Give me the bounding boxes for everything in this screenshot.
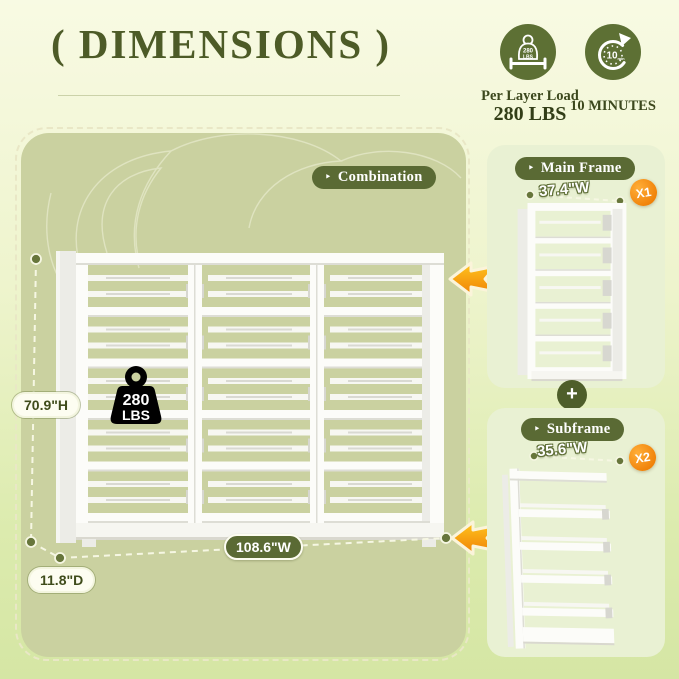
subframe-illustration	[501, 462, 621, 654]
tag-arrow-icon: ‣	[325, 173, 331, 183]
subframe-panel: ‣ Subframe 35.6"W X2	[487, 408, 665, 657]
combination-tag-label: Combination	[338, 169, 423, 186]
timer-icon-text: 10	[606, 51, 618, 62]
main-frame-title: Main Frame	[541, 160, 622, 177]
title-underline	[58, 95, 400, 96]
page-title: ( DIMENSIONS )	[20, 20, 422, 68]
dimensions-infographic: ( DIMENSIONS ) 280 LBS Per Layer Load 28…	[0, 0, 679, 679]
assembly-caption: 10 MINUTES	[548, 98, 678, 114]
combination-shelf-illustration: 280 LBS	[50, 249, 452, 551]
weight-badge-line2: LBS	[122, 407, 150, 423]
height-dimension-label: 70.9"H	[12, 392, 80, 418]
depth-dimension-label: 11.8"D	[28, 567, 95, 593]
assembly-caption-line: 10 MINUTES	[548, 98, 678, 114]
timer-icon-subtext: min	[617, 56, 625, 61]
plus-badge: +	[557, 380, 587, 410]
weight-icon: 280 LBS	[500, 24, 556, 80]
tag-arrow-icon: ‣	[528, 164, 534, 174]
combination-tag: ‣ Combination	[312, 166, 436, 189]
main-frame-illustration	[517, 201, 629, 383]
width-dimension-label: 108.6"W	[224, 534, 303, 560]
subframe-title: Subframe	[547, 421, 611, 438]
tag-arrow-icon: ‣	[534, 425, 540, 435]
main-frame-tag: ‣ Main Frame	[515, 157, 635, 180]
subframe-tag: ‣ Subframe	[521, 418, 624, 441]
main-frame-panel: ‣ Main Frame 37.4"W X1	[487, 145, 665, 388]
x2-badge: X2	[627, 442, 658, 473]
timer-icon: 10 min	[585, 24, 641, 80]
weight-badge: 280 LBS	[111, 366, 162, 424]
x1-badge: X1	[628, 177, 659, 208]
weight-icon-text-bottom: LBS	[523, 55, 534, 61]
